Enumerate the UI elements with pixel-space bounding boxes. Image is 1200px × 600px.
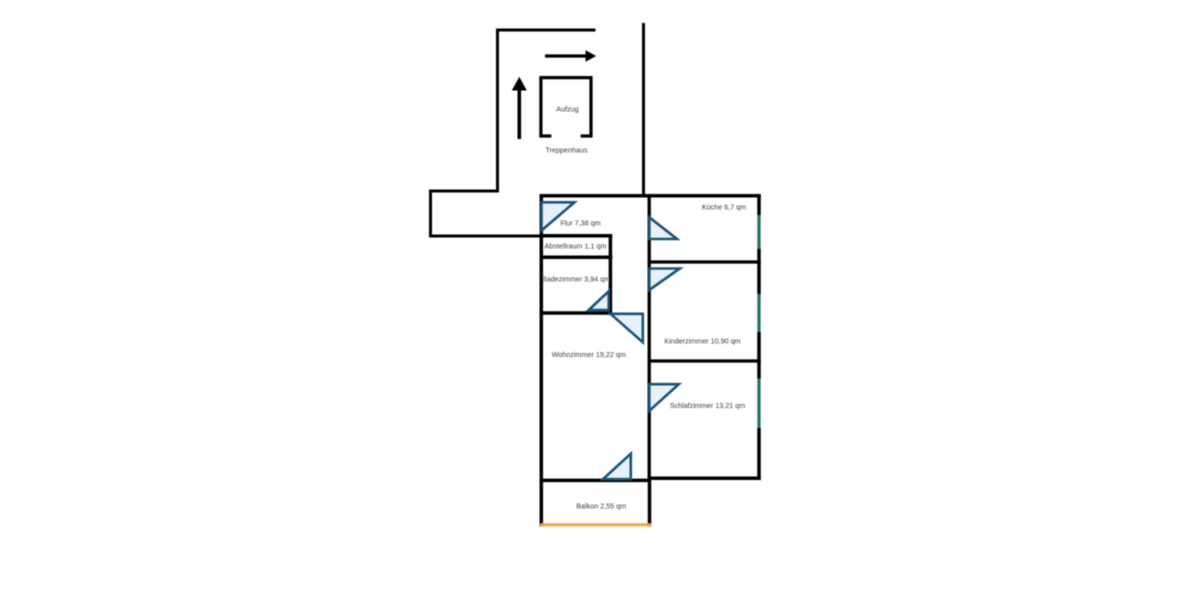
svg-text:Abstellraum 1,1 qm: Abstellraum 1,1 qm — [545, 242, 607, 251]
svg-text:Küche 6,7 qm: Küche 6,7 qm — [702, 203, 746, 212]
svg-text:Kinderzimmer 10,90 qm: Kinderzimmer 10,90 qm — [664, 337, 740, 346]
svg-text:Badezimmer 3,94 qm: Badezimmer 3,94 qm — [542, 275, 610, 284]
svg-text:Flur 7,38 qm: Flur 7,38 qm — [560, 219, 600, 228]
svg-text:Treppenhaus: Treppenhaus — [545, 146, 587, 155]
svg-text:Balkon 2,55 qm: Balkon 2,55 qm — [576, 502, 626, 511]
svg-text:Wohnzimmer 19,22 qm: Wohnzimmer 19,22 qm — [552, 350, 626, 359]
svg-text:Schlafzimmer 13,21 qm: Schlafzimmer 13,21 qm — [670, 401, 746, 410]
svg-text:Aufzug: Aufzug — [556, 105, 578, 114]
